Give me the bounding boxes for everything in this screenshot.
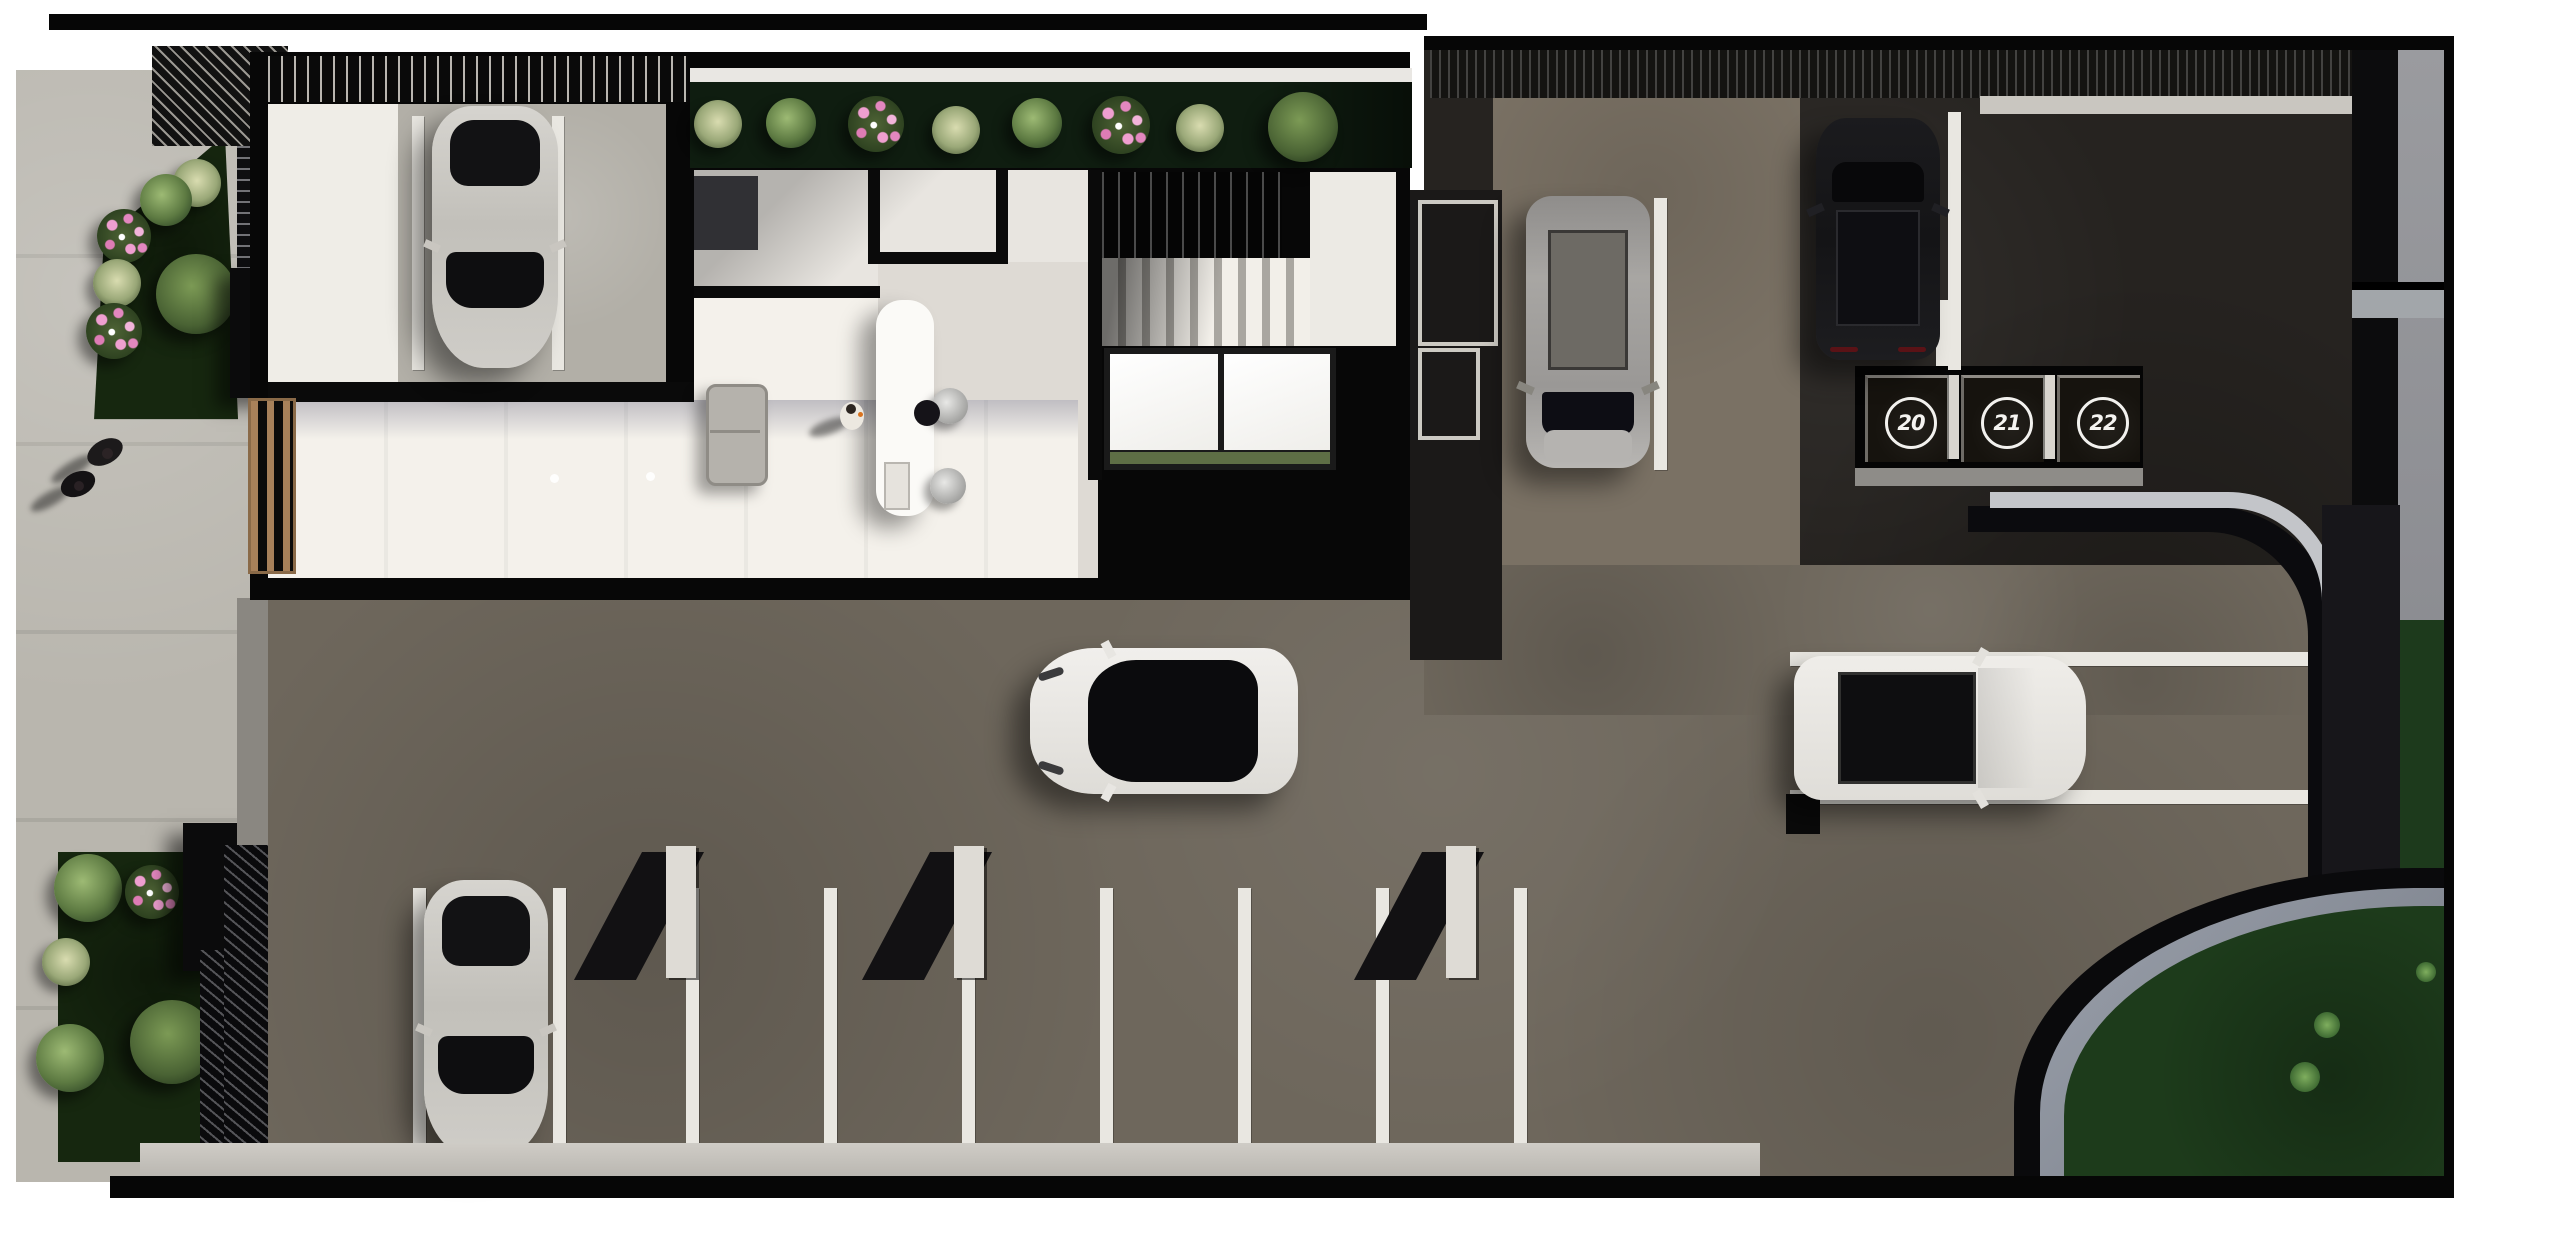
wall-segment	[996, 170, 1008, 264]
parking-divider	[954, 846, 984, 978]
car-hood	[1978, 668, 2074, 788]
receptionist	[914, 400, 940, 426]
numbered-stall: 21	[1961, 375, 2044, 462]
tree-icon	[156, 254, 236, 334]
visitor-head	[846, 404, 856, 414]
grass-plant-icon	[694, 100, 742, 148]
car-windshield	[438, 1036, 534, 1094]
stair-side-room	[1310, 172, 1396, 346]
car-rear-glass	[450, 120, 540, 186]
bush-icon	[1268, 92, 1338, 162]
stall-number-badge: 20	[1885, 397, 1937, 449]
grass-plant-icon	[93, 259, 141, 307]
retaining-wall	[2398, 50, 2448, 620]
parking-line	[824, 888, 837, 1162]
car-sunroof	[1548, 230, 1628, 370]
car-taillight	[1830, 347, 1858, 352]
stall-number-badge: 22	[2077, 397, 2129, 449]
bush-icon	[140, 174, 192, 226]
car-taillight	[1898, 347, 1926, 352]
car-glass-canopy	[1088, 660, 1258, 782]
car-roof-glass	[1838, 672, 1976, 784]
wall-segment	[868, 170, 880, 264]
lot-left-wall	[237, 598, 268, 845]
car-windshield	[1832, 162, 1924, 202]
car-street	[424, 880, 548, 1158]
flower-bush-icon	[86, 303, 142, 359]
storage-outline	[1418, 348, 1480, 440]
wheel-stop-block	[1786, 794, 1820, 834]
staircase-shadow	[1102, 258, 1310, 346]
grass-plant-icon	[42, 938, 90, 986]
wall-shadow	[2352, 282, 2448, 290]
pedestrian-head	[74, 481, 84, 491]
skylight-panel	[1110, 354, 1218, 450]
bush-icon	[766, 98, 816, 148]
wall-segment	[868, 252, 1008, 264]
sofa	[706, 384, 768, 486]
flower-bush-icon	[848, 96, 904, 152]
grass-plant-icon	[932, 106, 980, 154]
grass-plant-icon	[1176, 104, 1224, 152]
north-boundary-wall-right	[1424, 36, 2454, 50]
floor-light	[646, 472, 655, 481]
flower-bush-icon	[1092, 96, 1150, 154]
numbered-stall: 20	[1865, 375, 1948, 462]
storage-cabinet	[694, 176, 758, 250]
bush-icon	[54, 854, 122, 922]
wall-shadow	[2322, 505, 2400, 905]
garage-pergola	[268, 56, 688, 102]
car-windshield	[446, 252, 544, 308]
retaining-wall	[1980, 96, 2352, 114]
parking-line	[1514, 888, 1527, 1162]
desk-chair	[930, 468, 966, 504]
sofa-seam	[710, 430, 760, 433]
stall-number-badge: 21	[1981, 397, 2033, 449]
stall-number: 20	[1897, 411, 1924, 435]
stall-separator	[2043, 375, 2055, 459]
flower-bush-icon	[125, 865, 179, 919]
wall-segment	[1088, 170, 1102, 480]
parking-line	[412, 116, 424, 370]
car-black-suv	[1816, 118, 1940, 360]
car-white-sedan	[1030, 648, 1298, 794]
south-boundary-wall	[110, 1176, 2454, 1198]
car-sunroof	[1836, 210, 1920, 326]
north-boundary-wall	[49, 14, 1427, 30]
garage-side-floor	[268, 104, 398, 382]
lawn-tuft	[2314, 1012, 2340, 1038]
lawn-tuft	[2290, 1062, 2320, 1092]
parking-divider	[1446, 846, 1476, 978]
east-boundary-wall	[2444, 36, 2454, 1190]
planter-strip	[1110, 452, 1330, 464]
wall-segment	[694, 286, 880, 298]
floor-light	[550, 474, 559, 483]
skylight-panel	[1224, 354, 1330, 450]
car-hood	[1544, 430, 1632, 462]
ramp-grate	[1430, 50, 2352, 98]
parapet	[690, 68, 1412, 82]
numbered-stall: 22	[2057, 375, 2140, 462]
stall-separator	[1947, 375, 1959, 459]
parking-line	[1948, 112, 1961, 370]
car-white-suv	[1794, 656, 2086, 800]
site-plan-rendering: 20 21 22	[0, 0, 2560, 1255]
lawn-tuft	[2416, 962, 2436, 982]
stall-number: 22	[2089, 411, 2116, 435]
desk-equipment	[884, 462, 910, 510]
car-garage	[432, 106, 558, 368]
stall-block-curb	[1855, 468, 2143, 486]
bush-icon	[36, 1024, 104, 1092]
retaining-wall	[2352, 290, 2448, 318]
storage-outline	[1418, 200, 1498, 346]
bush-icon	[1012, 98, 1062, 148]
visitor-detail	[858, 412, 863, 417]
wall-segment	[268, 382, 694, 402]
stair-landing	[1102, 172, 1282, 258]
numbered-stall-block: 20 21 22	[1855, 366, 2143, 468]
car-silver-suv	[1526, 196, 1650, 468]
pedestrian-head	[102, 448, 113, 459]
parking-line	[1238, 888, 1251, 1162]
stall-number: 21	[1993, 411, 2020, 435]
parking-divider	[666, 846, 696, 978]
flower-bush-icon	[97, 209, 151, 263]
parking-line	[1654, 198, 1667, 470]
car-rear-glass	[442, 896, 530, 966]
parking-line	[1100, 888, 1113, 1162]
wood-gate	[248, 398, 296, 574]
